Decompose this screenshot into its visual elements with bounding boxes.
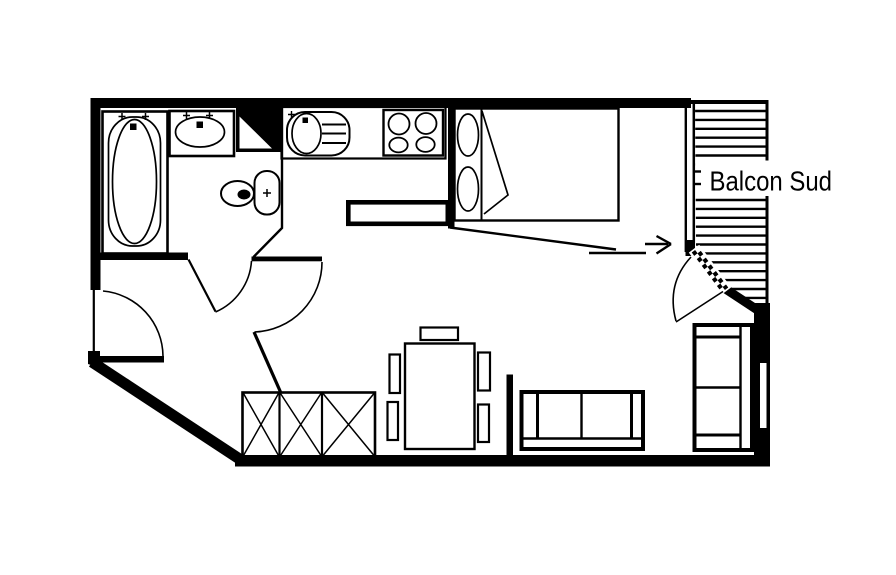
svg-text:Balcon Sud: Balcon Sud <box>710 166 833 197</box>
